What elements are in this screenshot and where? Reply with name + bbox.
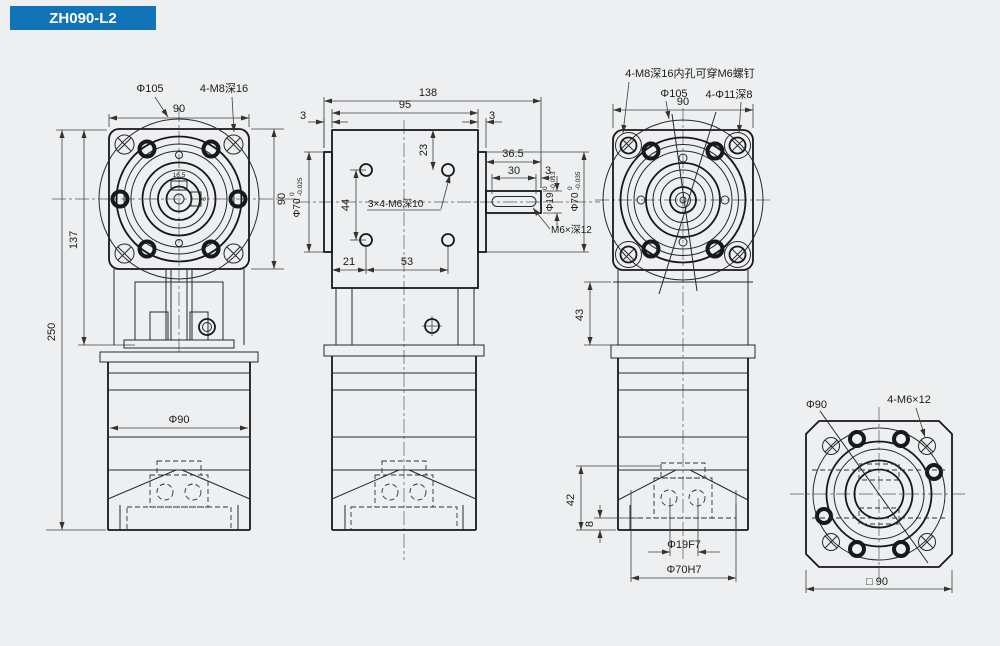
svg-text:Φ70: Φ70	[292, 198, 303, 218]
svg-text:0: 0	[542, 186, 549, 190]
dim-side-plate-left: 3	[300, 110, 306, 122]
svg-text:0: 0	[567, 186, 574, 190]
svg-text:Φ70: Φ70	[570, 192, 581, 212]
dim-rear-mount-height: 42	[565, 494, 577, 506]
dim-front-bolt-holes: 4-M8深16	[200, 82, 248, 95]
dim-side-hole-spacing-h: 53	[401, 256, 413, 268]
dim-output-square: □ 90	[866, 576, 888, 588]
dim-shaft-length: 36.5	[502, 148, 523, 160]
svg-text:0: 0	[289, 192, 296, 196]
dim-front-width-top: 90	[173, 103, 185, 115]
technical-drawing: ZH090-L2 16.5	[0, 0, 1000, 646]
dim-side-hole-top: 23	[418, 144, 430, 156]
dim-rear-step-height: 8	[584, 521, 596, 527]
dim-side-length-body: 95	[399, 99, 411, 111]
svg-text:-0.013: -0.013	[550, 171, 557, 190]
dim-rear-flange-depth: 43	[574, 309, 586, 321]
dim-key-length: 30	[508, 165, 520, 177]
dim-output-screws: 4-M6×12	[887, 394, 931, 406]
dim-side-hole-left: 21	[343, 256, 355, 268]
dim-front-height-flange-section: 137	[68, 231, 80, 249]
dim-front-height-right: 90	[276, 193, 288, 205]
dim-rear-bore: Φ19F7	[667, 539, 701, 551]
dim-side-plate-right: 3	[489, 110, 495, 122]
svg-text:-0.035: -0.035	[575, 171, 582, 190]
dim-rear-recess: Φ70H7	[666, 564, 701, 576]
dim-front-height-total: 250	[46, 323, 58, 341]
dim-rear-corner-holes: 4-Φ11深8	[705, 88, 752, 101]
dim-front-flange-circle: Φ105	[136, 83, 163, 95]
dim-front-key-width: 16.5	[173, 172, 186, 179]
title-banner: ZH090-L2	[10, 6, 156, 30]
dim-output-circle: Φ90	[806, 399, 827, 411]
dim-side-length-total: 138	[419, 87, 437, 99]
drawing-sheet: ZH090-L2 16.5	[0, 0, 1000, 646]
dim-side-hole-spacing-v: 44	[340, 199, 352, 211]
model-title: ZH090-L2	[49, 10, 117, 27]
label-side-holes: 3×4-M6深10	[368, 198, 424, 210]
svg-text:-0.025: -0.025	[297, 177, 304, 196]
dim-front-key-height: 6	[201, 197, 208, 201]
svg-text:Φ19: Φ19	[545, 192, 556, 212]
label-rear-bolt-holes: 4-M8深16内孔可穿M6螺钉	[625, 66, 755, 80]
label-shaft-tap: M6×深12	[551, 224, 592, 236]
dim-rear-width-top: 90	[677, 96, 689, 108]
dim-front-body-diameter: Φ90	[168, 414, 189, 426]
